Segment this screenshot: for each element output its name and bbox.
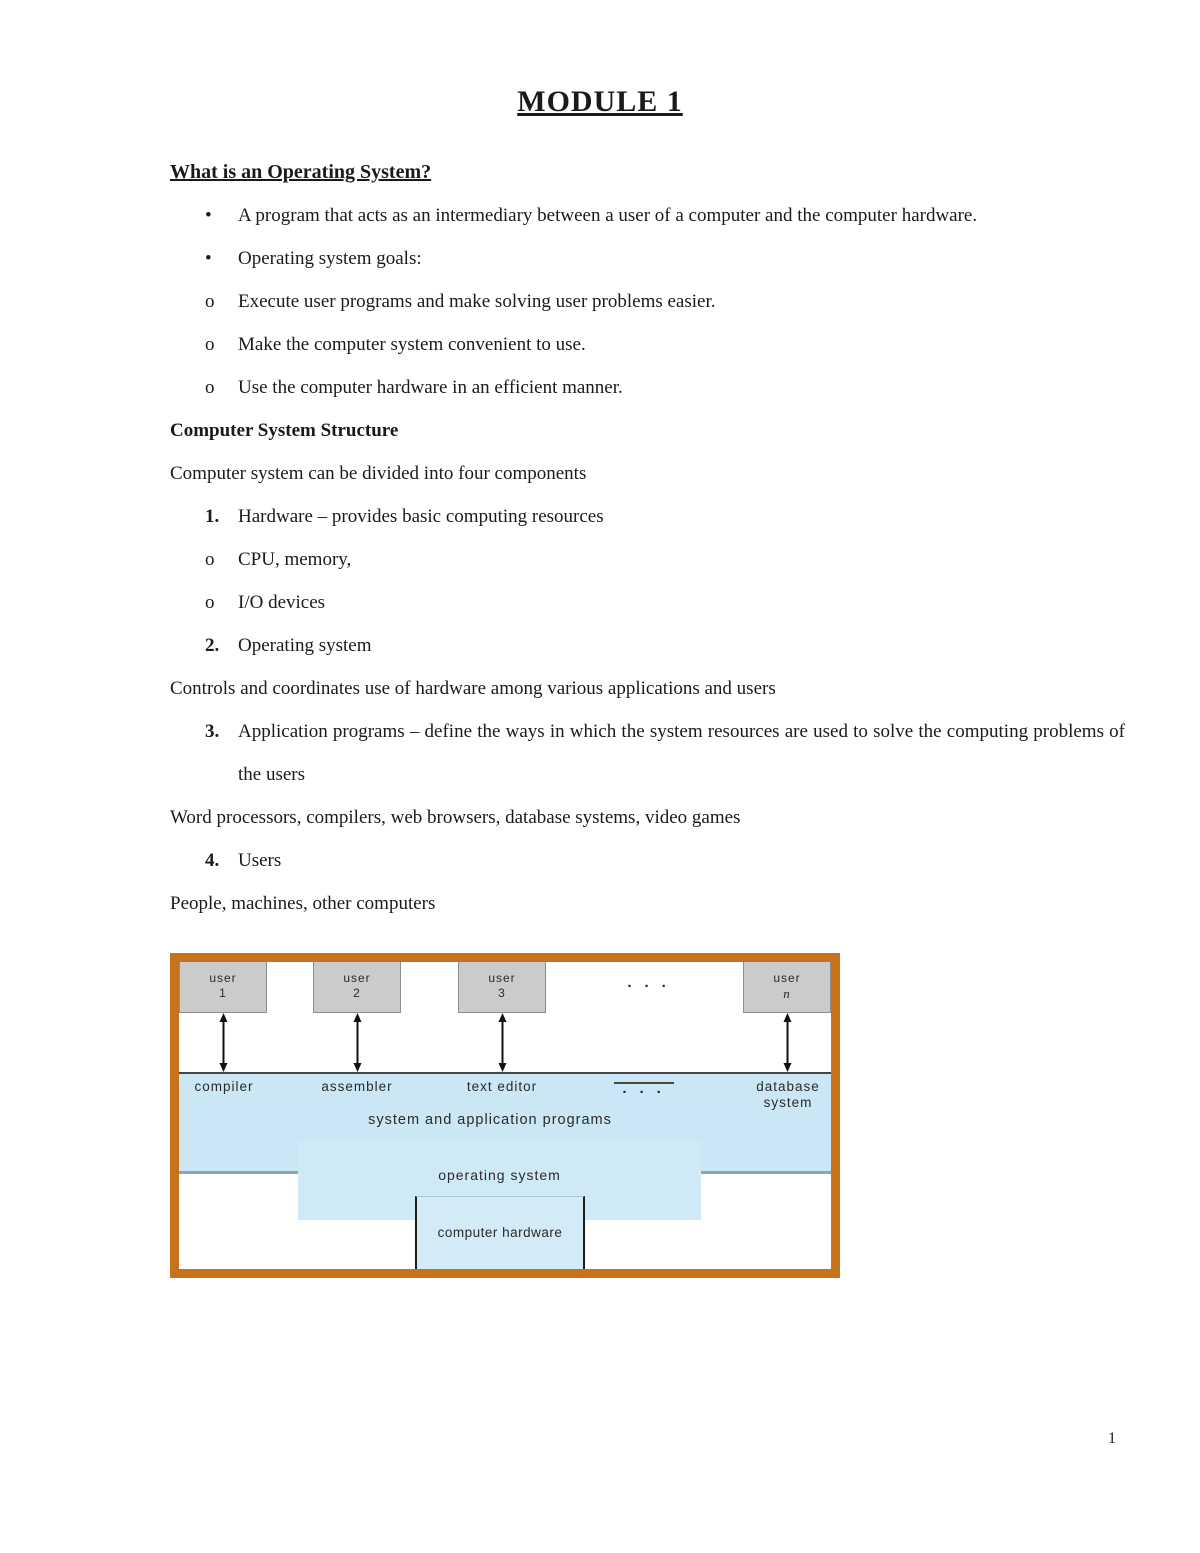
list-item-text: CPU, memory,	[238, 538, 1125, 581]
paragraph: Controls and coordinates use of hardware…	[170, 667, 1125, 710]
user-box: user 2	[313, 962, 401, 1013]
circle-marker: o	[205, 538, 231, 581]
document-page: MODULE 1 What is an Operating System? • …	[0, 0, 1200, 1553]
program-label-text-editor: text editor	[457, 1079, 547, 1095]
user-box-label: user	[209, 971, 236, 985]
user-box-number: 1	[180, 986, 266, 1001]
list-item: 1. Hardware – provides basic computing r…	[170, 495, 1125, 538]
user-box-label: user	[773, 971, 800, 985]
list-item-text: Users	[238, 839, 1125, 882]
band-title: system and application programs	[179, 1112, 801, 1128]
list-item-text: Use the computer hardware in an efficien…	[238, 366, 1125, 409]
list-item: 2. Operating system	[170, 624, 1125, 667]
page-title: MODULE 1	[0, 80, 1200, 124]
list-item-text: Operating system goals:	[238, 237, 1125, 280]
bullet-marker: •	[205, 194, 231, 237]
list-item-text: Execute user programs and make solving u…	[238, 280, 1125, 323]
list-item: o I/O devices	[170, 581, 1125, 624]
double-arrow-icon	[497, 1013, 508, 1072]
number-marker: 3.	[205, 710, 231, 753]
program-label-database-system: database system	[750, 1079, 826, 1111]
double-arrow-icon	[218, 1013, 229, 1072]
os-structure-diagram: user 1 user 2 user 3 user n · · · comp	[170, 953, 840, 1278]
list-item-text: Hardware – provides basic computing reso…	[238, 495, 1125, 538]
list-item: o CPU, memory,	[170, 538, 1125, 581]
double-arrow-icon	[782, 1013, 793, 1072]
user-box-label: user	[488, 971, 515, 985]
list-item: 3. Application programs – define the way…	[170, 710, 1125, 796]
computer-hardware-box: computer hardware	[415, 1196, 585, 1269]
number-marker: 4.	[205, 839, 231, 882]
list-item: • A program that acts as an intermediary…	[170, 194, 1125, 237]
paragraph: Word processors, compilers, web browsers…	[170, 796, 1125, 839]
list-item-text: I/O devices	[238, 581, 1125, 624]
user-box-number: 2	[314, 986, 400, 1001]
circle-marker: o	[205, 280, 231, 323]
section-heading-computer-system-structure: Computer System Structure	[170, 409, 1125, 452]
circle-marker: o	[205, 323, 231, 366]
list-item-text: Application programs – define the ways i…	[238, 710, 1125, 796]
circle-marker: o	[205, 581, 231, 624]
list-item: o Execute user programs and make solving…	[170, 280, 1125, 323]
list-item-text: A program that acts as an intermediary b…	[238, 194, 1125, 237]
list-item: o Use the computer hardware in an effici…	[170, 366, 1125, 409]
list-item: 4. Users	[170, 839, 1125, 882]
double-arrow-icon	[352, 1013, 363, 1072]
paragraph: People, machines, other computers	[170, 882, 1125, 925]
list-item-text: Make the computer system convenient to u…	[238, 323, 1125, 366]
user-box-label: user	[343, 971, 370, 985]
ellipsis: · · ·	[614, 978, 684, 995]
list-item-text: Operating system	[238, 624, 1125, 667]
page-number: 1	[1108, 1430, 1116, 1448]
operating-system-label: operating system	[438, 1167, 561, 1183]
user-box-number: n	[744, 986, 830, 1001]
program-label-assembler: assembler	[312, 1079, 402, 1095]
user-box-number: 3	[459, 986, 545, 1001]
paragraph: Computer system can be divided into four…	[170, 452, 1125, 495]
list-item: • Operating system goals:	[170, 237, 1125, 280]
computer-hardware-label: computer hardware	[438, 1225, 563, 1240]
circle-marker: o	[205, 366, 231, 409]
user-box: user 1	[179, 962, 267, 1013]
section-heading-what-is-os: What is an Operating System?	[170, 151, 1125, 194]
program-label-compiler: compiler	[179, 1079, 269, 1095]
user-box: user 3	[458, 962, 546, 1013]
list-item: o Make the computer system convenient to…	[170, 323, 1125, 366]
number-marker: 2.	[205, 624, 231, 667]
user-box: user n	[743, 962, 831, 1013]
number-marker: 1.	[205, 495, 231, 538]
bullet-marker: •	[205, 237, 231, 280]
